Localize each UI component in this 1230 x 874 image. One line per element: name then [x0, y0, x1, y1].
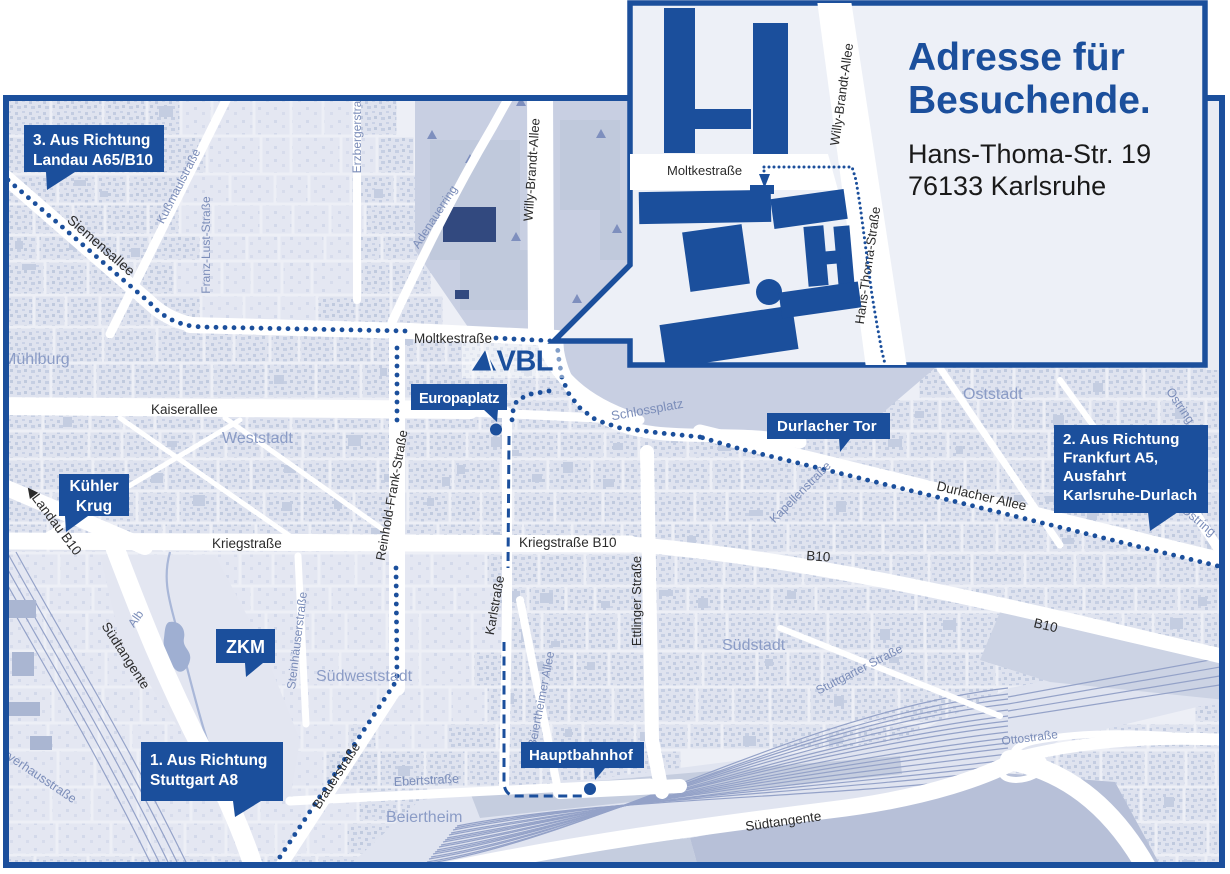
svg-text:Frankfurt A5,: Frankfurt A5, — [1063, 450, 1158, 467]
svg-text:76133 Karlsruhe: 76133 Karlsruhe — [908, 171, 1106, 201]
svg-text:Ettlinger Straße: Ettlinger Straße — [629, 556, 644, 646]
svg-text:Weststadt: Weststadt — [222, 430, 293, 447]
svg-text:Kaiserallee: Kaiserallee — [151, 402, 218, 417]
svg-text:ZKM: ZKM — [226, 637, 265, 657]
svg-text:Moltkestraße: Moltkestraße — [414, 331, 492, 346]
svg-text:Beiertheim: Beiertheim — [386, 809, 462, 826]
svg-text:3. Aus Richtung: 3. Aus Richtung — [33, 132, 150, 149]
svg-text:Krug: Krug — [76, 498, 112, 515]
svg-text:Stuttgart A8: Stuttgart A8 — [150, 772, 238, 789]
svg-text:Moltkestraße: Moltkestraße — [667, 163, 742, 178]
svg-text:Landau A65/B10: Landau A65/B10 — [33, 152, 153, 169]
svg-text:Franz-Lust-Straße: Franz-Lust-Straße — [199, 196, 213, 294]
svg-text:2. Aus Richtung: 2. Aus Richtung — [1063, 431, 1180, 448]
svg-text:Ausfahrt: Ausfahrt — [1063, 468, 1126, 485]
svg-text:Oststadt: Oststadt — [963, 386, 1023, 403]
svg-text:Hauptbahnhof: Hauptbahnhof — [529, 747, 634, 764]
svg-text:VBL: VBL — [497, 346, 554, 378]
svg-text:B10: B10 — [806, 548, 831, 565]
svg-text:Mühlburg: Mühlburg — [3, 351, 70, 368]
svg-text:1. Aus Richtung: 1. Aus Richtung — [150, 752, 267, 769]
svg-text:Europaplatz: Europaplatz — [419, 391, 499, 407]
svg-text:Adresse für: Adresse für — [908, 36, 1125, 79]
svg-text:Hans-Thoma-Str. 19: Hans-Thoma-Str. 19 — [908, 139, 1151, 169]
svg-text:Durlacher Tor: Durlacher Tor — [777, 418, 877, 435]
svg-text:Kühler: Kühler — [69, 478, 118, 495]
svg-text:Karlsruhe-Durlach: Karlsruhe-Durlach — [1063, 487, 1197, 504]
svg-text:Besuchende.: Besuchende. — [908, 79, 1151, 122]
svg-text:Südstadt: Südstadt — [722, 637, 786, 654]
svg-text:Kriegstraße: Kriegstraße — [212, 536, 282, 551]
svg-text:Kriegstraße B10: Kriegstraße B10 — [519, 535, 617, 550]
svg-text:Südweststadt: Südweststadt — [316, 668, 413, 685]
